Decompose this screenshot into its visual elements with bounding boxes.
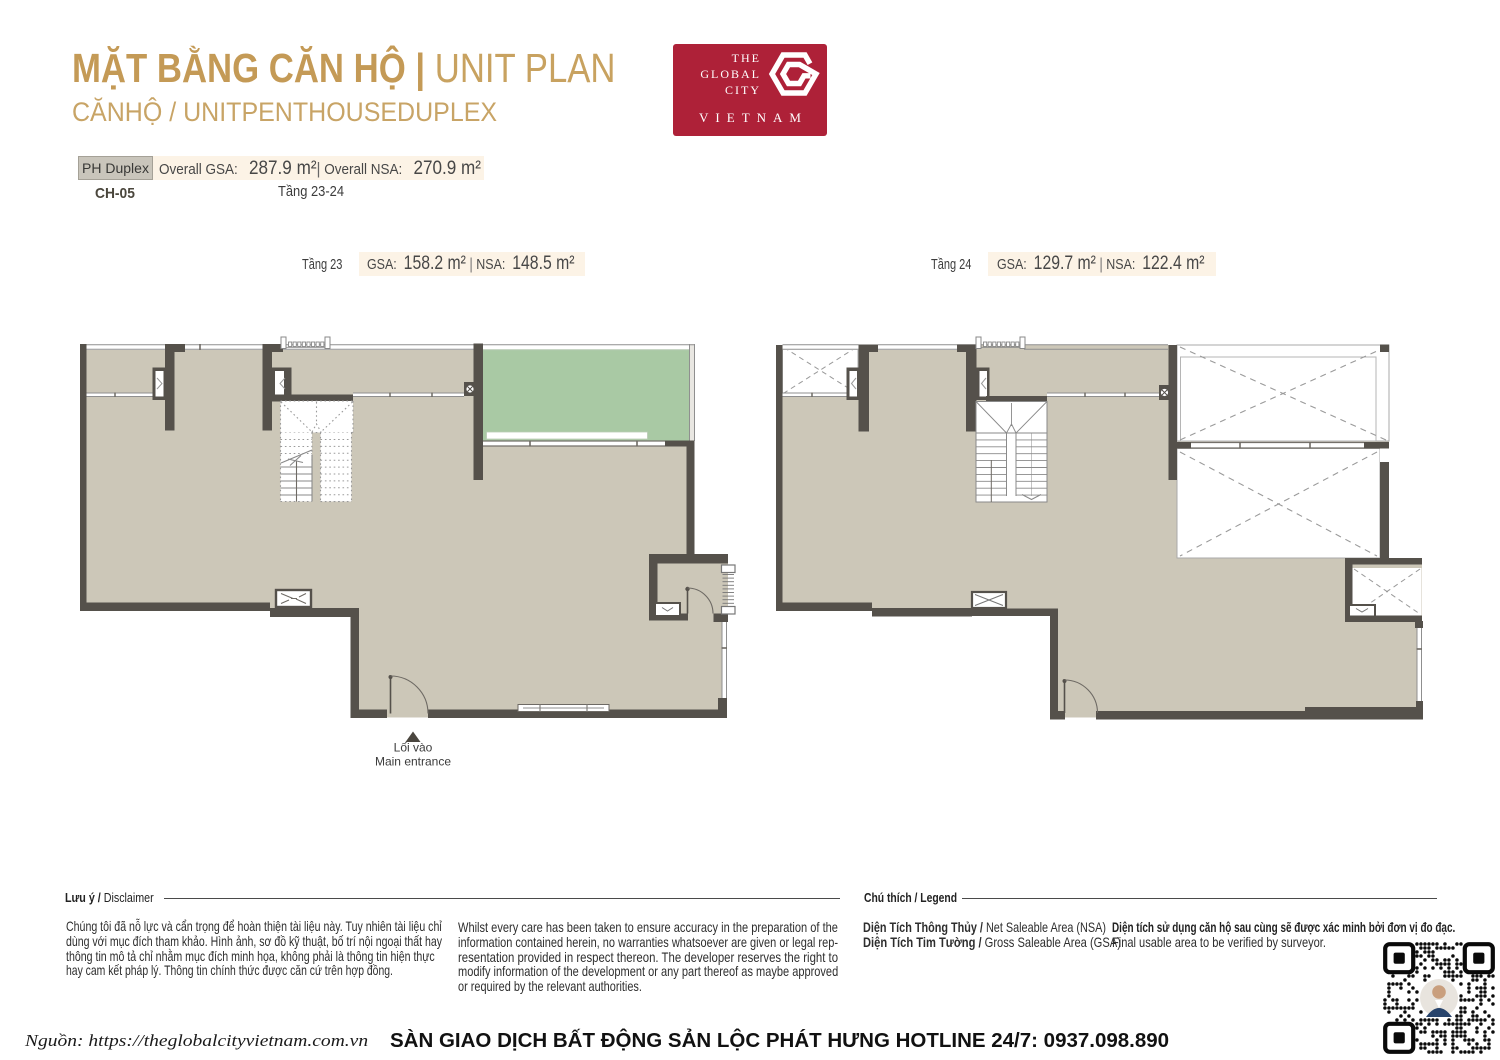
svg-text:Main entrance: Main entrance bbox=[375, 755, 451, 769]
svg-text:Lối vào: Lối vào bbox=[394, 741, 433, 755]
